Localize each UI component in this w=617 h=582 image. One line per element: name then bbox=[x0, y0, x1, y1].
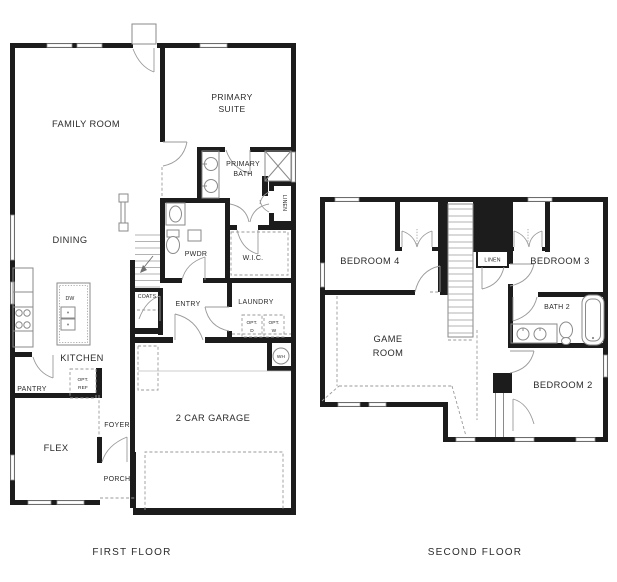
label-entry: ENTRY bbox=[175, 301, 200, 308]
label-kitchen: KITCHEN bbox=[60, 353, 104, 363]
label-bedroom3: BEDROOM 3 bbox=[530, 256, 589, 266]
label-bath2: BATH 2 bbox=[544, 304, 570, 311]
label-wic: W.I.C. bbox=[243, 255, 264, 262]
captions: FIRST FLOOR SECOND FLOOR bbox=[92, 547, 522, 558]
toilet-base bbox=[562, 338, 571, 345]
label-dining: DINING bbox=[53, 235, 88, 245]
label-game-room: ROOM bbox=[373, 348, 404, 358]
first-floor-plan: FAMILY ROOM PRIMARY SUITE PRIMARY BATH L… bbox=[10, 24, 296, 515]
label-primary-bath: PRIMARY bbox=[226, 161, 260, 168]
stair-newel-post bbox=[119, 223, 128, 231]
label-opt-w: W bbox=[272, 328, 277, 334]
ff-labels: FAMILY ROOM PRIMARY SUITE PRIMARY BATH L… bbox=[17, 92, 287, 483]
label-linen: LINEN bbox=[281, 195, 287, 211]
stairwell bbox=[448, 204, 473, 337]
cooktop-burner bbox=[16, 310, 22, 316]
sink-icon bbox=[170, 206, 182, 222]
label-wh: WH bbox=[277, 354, 286, 360]
label-family-room: FAMILY ROOM bbox=[52, 119, 120, 129]
cooktop-burner bbox=[16, 322, 22, 328]
toilet-tank bbox=[167, 230, 179, 237]
label-pwdr: PWDR bbox=[185, 251, 208, 258]
label-linen: LINEN bbox=[484, 258, 500, 264]
pwdr-sink bbox=[188, 230, 201, 241]
floorplan-canvas: FAMILY ROOM PRIMARY SUITE PRIMARY BATH L… bbox=[0, 0, 617, 582]
sf-bath-fixtures bbox=[511, 295, 604, 345]
toilet-icon bbox=[167, 237, 180, 254]
garage-door-outline bbox=[145, 452, 283, 510]
label-flex: FLEX bbox=[44, 443, 69, 453]
sf-stairs bbox=[448, 204, 473, 340]
sf-labels: BEDROOM 4 BEDROOM 3 LINEN GAME ROOM BATH… bbox=[340, 256, 592, 390]
label-pantry: PANTRY bbox=[17, 386, 47, 393]
label-bedroom4: BEDROOM 4 bbox=[340, 256, 399, 266]
label-garage: 2 CAR GARAGE bbox=[176, 413, 251, 423]
cooktop-burner bbox=[24, 310, 30, 316]
label-opt-ref: OPT. bbox=[77, 377, 88, 383]
label-coats: COATS bbox=[138, 294, 157, 300]
back-door-frame bbox=[132, 24, 156, 44]
label-primary-suite: PRIMARY bbox=[211, 92, 252, 102]
sf-walls bbox=[320, 197, 608, 442]
label-opt-d: OPT. bbox=[246, 320, 257, 326]
label-porch: PORCH bbox=[104, 476, 131, 483]
floorplan-page: FAMILY ROOM PRIMARY SUITE PRIMARY BATH L… bbox=[0, 0, 617, 582]
label-opt-w: OPT. bbox=[268, 320, 279, 326]
label-opt-d: D bbox=[250, 328, 254, 334]
second-floor-caption: SECOND FLOOR bbox=[428, 547, 522, 558]
label-bedroom2: BEDROOM 2 bbox=[533, 380, 592, 390]
cooktop-burner bbox=[24, 322, 30, 328]
label-laundry: LAUNDRY bbox=[238, 299, 273, 306]
toilet-icon bbox=[560, 322, 573, 338]
label-foyer: FOYER bbox=[104, 422, 130, 429]
first-floor-caption: FIRST FLOOR bbox=[92, 547, 171, 558]
label-game-room: GAME bbox=[374, 334, 403, 344]
label-dw: DW bbox=[65, 296, 74, 302]
label-primary-suite: SUITE bbox=[218, 104, 245, 114]
sf-dashed-lines bbox=[322, 292, 477, 436]
label-primary-bath: BATH bbox=[233, 171, 252, 178]
stair-newel-post bbox=[119, 194, 128, 202]
label-opt-ref: REF bbox=[78, 385, 88, 391]
second-floor-plan: BEDROOM 4 BEDROOM 3 LINEN GAME ROOM BATH… bbox=[320, 197, 608, 442]
